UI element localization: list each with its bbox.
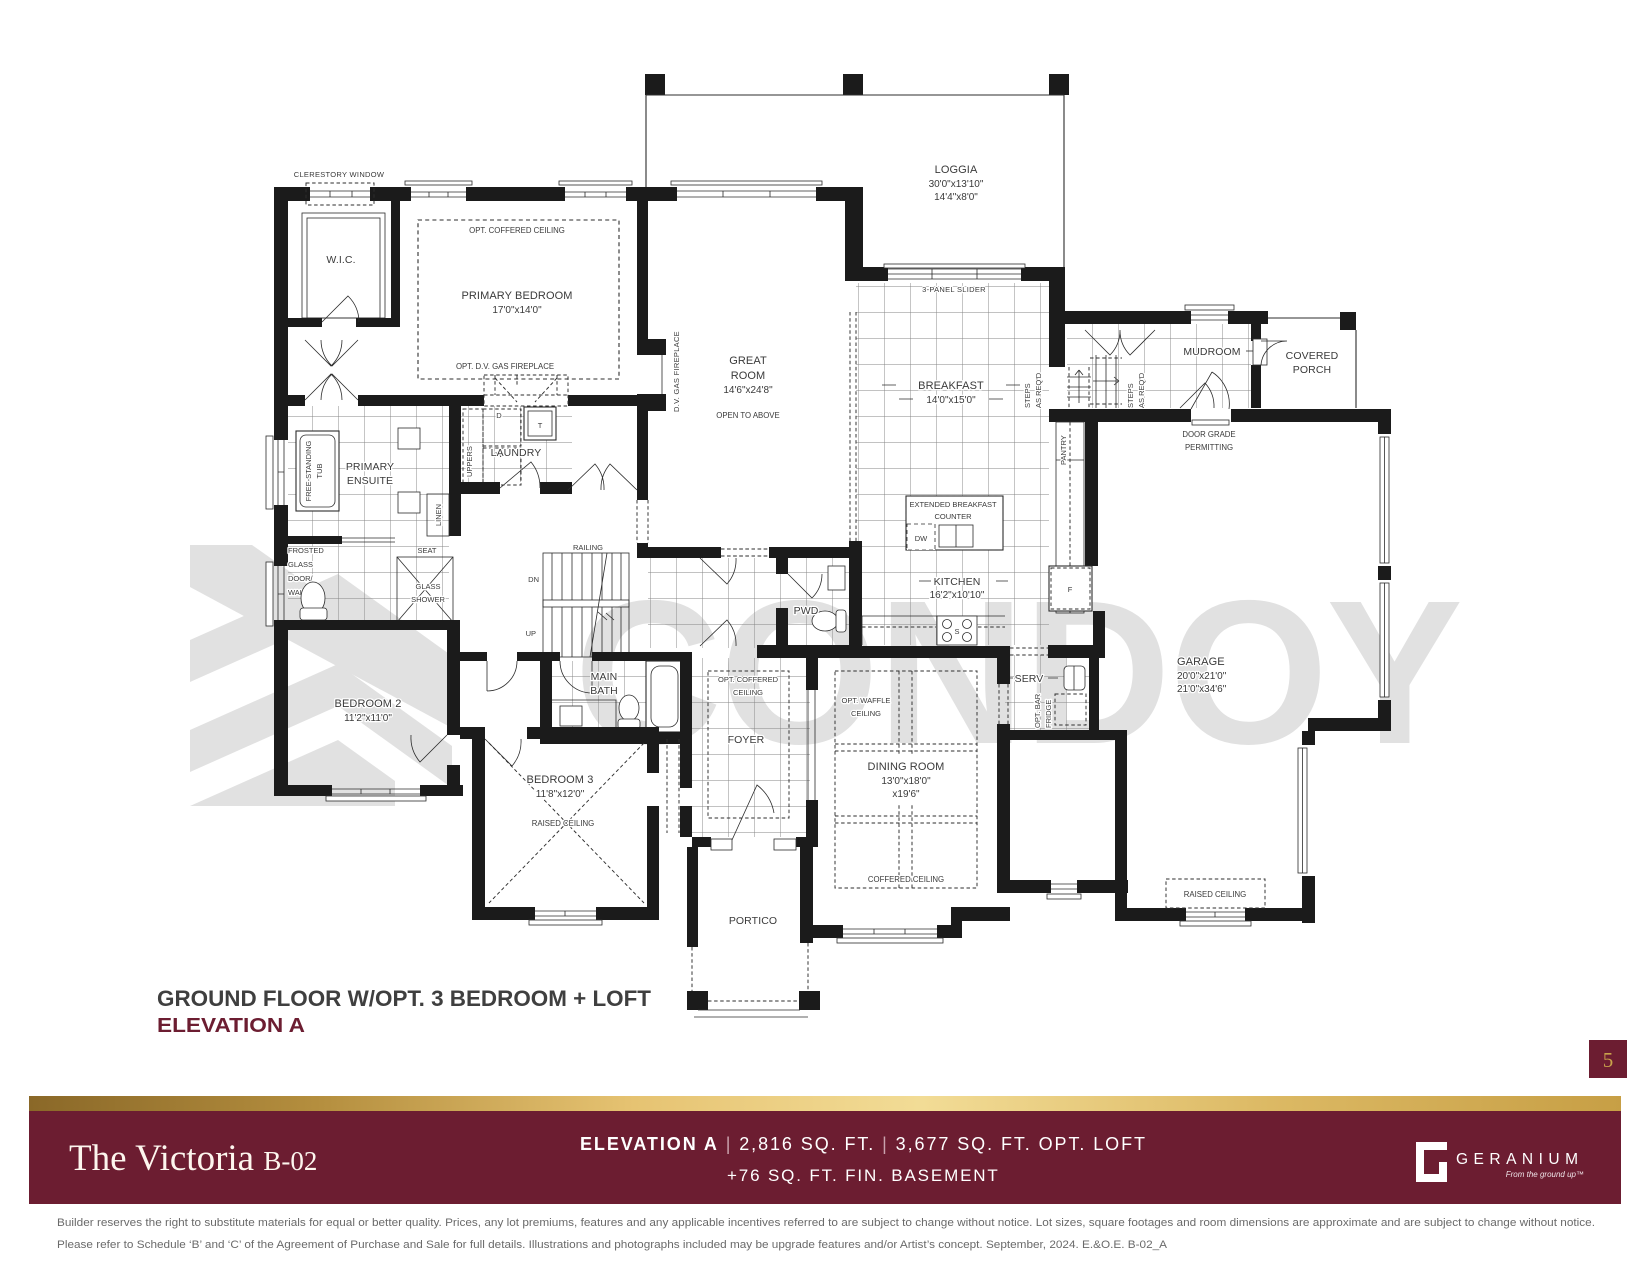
svg-text:OPT. D.V. GAS FIREPLACE: OPT. D.V. GAS FIREPLACE [456,362,554,371]
svg-text:GREAT: GREAT [729,355,767,367]
svg-text:BEDROOM 3: BEDROOM 3 [527,774,594,786]
svg-text:FREE-STANDING: FREE-STANDING [304,440,313,501]
svg-text:FROSTED: FROSTED [288,546,324,555]
svg-text:COVERED: COVERED [1286,350,1339,362]
svg-text:STEPS: STEPS [1023,383,1032,408]
svg-text:F: F [1068,585,1073,594]
svg-text:COUNTER: COUNTER [934,512,972,521]
svg-text:DOOR/: DOOR/ [288,574,314,583]
svg-text:14'6"x24'8": 14'6"x24'8" [723,385,773,396]
svg-text:CLERESTORY WINDOW: CLERESTORY WINDOW [294,170,385,179]
svg-text:RAILING: RAILING [573,543,603,552]
svg-text:From the ground up™: From the ground up™ [1506,1170,1584,1179]
svg-text:UP: UP [526,629,536,638]
svg-text:D.V. GAS FIREPLACE: D.V. GAS FIREPLACE [672,331,681,412]
svg-text:21'0"x34'6": 21'0"x34'6" [1177,684,1227,695]
svg-text:DN: DN [528,575,539,584]
svg-text:RAISED CEILING: RAISED CEILING [1184,890,1246,899]
svg-text:AS REQ'D: AS REQ'D [1137,372,1146,408]
svg-text:COFFERED CEILING: COFFERED CEILING [868,875,944,884]
svg-text:PORTICO: PORTICO [729,915,777,927]
svg-text:KITCHEN: KITCHEN [934,576,981,588]
svg-text:30'0"x13'10": 30'0"x13'10" [929,179,984,190]
svg-text:14'0"x15'0": 14'0"x15'0" [926,395,976,406]
svg-text:AS REQ'D: AS REQ'D [1034,372,1043,408]
svg-text:11'2"x11'0": 11'2"x11'0" [344,713,392,724]
svg-text:ELEVATION A | 2,816 SQ. FT.: ELEVATION A | 2,816 SQ. FT. | 3,677 SQ. … [580,1134,1146,1154]
svg-text:PORCH: PORCH [1293,364,1331,376]
svg-text:D: D [496,411,502,420]
svg-text:EXTENDED BREAKFAST: EXTENDED BREAKFAST [909,500,997,509]
svg-text:PWD: PWD [794,605,819,617]
svg-text:BREAKFAST: BREAKFAST [918,380,984,392]
svg-text:OPT. COFFERED CEILING: OPT. COFFERED CEILING [469,226,565,235]
svg-text:STEPS: STEPS [1126,383,1135,408]
svg-text:FRIDGE: FRIDGE [1044,700,1053,728]
svg-text:GARAGE: GARAGE [1177,656,1225,668]
svg-text:BEDROOM 2: BEDROOM 2 [335,698,402,710]
svg-text:+76 SQ. FT. FIN. BASEMENT: +76 SQ. FT. FIN. BASEMENT [727,1166,999,1185]
svg-text:14'4"x8'0": 14'4"x8'0" [934,192,978,203]
svg-text:OPT. COFFERED: OPT. COFFERED [718,675,779,684]
svg-text:OPT. BAR: OPT. BAR [1033,693,1042,728]
svg-text:ROOM: ROOM [731,370,766,382]
svg-text:16'2"x10'10": 16'2"x10'10" [930,590,985,601]
svg-text:Builder reserves the right to: Builder reserves the right to substitute… [57,1217,1595,1229]
svg-text:20'0"x21'0": 20'0"x21'0" [1177,671,1227,682]
svg-text:SERV: SERV [1015,673,1044,685]
svg-text:DINING ROOM: DINING ROOM [868,761,945,773]
svg-text:MUDROOM: MUDROOM [1183,346,1240,358]
svg-text:PRIMARY BEDROOM: PRIMARY BEDROOM [461,290,572,302]
svg-text:GROUND FLOOR W/OPT. 3 BEDROOM: GROUND FLOOR W/OPT. 3 BEDROOM + LOFT [157,986,652,1011]
svg-text:LINEN: LINEN [434,504,443,526]
svg-text:DOOR GRADE: DOOR GRADE [1182,430,1235,439]
svg-text:LOGGIA: LOGGIA [935,164,978,176]
svg-text:TUB: TUB [315,464,324,479]
svg-text:GLASS: GLASS [415,582,440,591]
svg-text:BATH: BATH [590,685,618,697]
svg-text:S: S [954,627,959,636]
svg-text:UPPERS: UPPERS [465,446,474,477]
svg-text:ELEVATION A: ELEVATION A [157,1015,305,1037]
svg-text:W.I.C.: W.I.C. [326,254,355,266]
svg-text:11'8"x12'0": 11'8"x12'0" [536,789,585,800]
svg-text:ENSUITE: ENSUITE [347,475,393,487]
svg-text:DW: DW [915,534,928,543]
svg-text:GERANIUM: GERANIUM [1456,1151,1584,1168]
svg-text:Please refer to Schedule ‘B’ a: Please refer to Schedule ‘B’ and ‘C’ of … [57,1239,1168,1251]
svg-text:CEILING: CEILING [851,709,881,718]
svg-text:5: 5 [1603,1048,1614,1072]
svg-text:PANTRY: PANTRY [1059,435,1068,465]
svg-text:PERMITTING: PERMITTING [1185,443,1233,452]
svg-text:SEAT: SEAT [417,546,436,555]
svg-text:LAUNDRY: LAUNDRY [491,447,542,459]
svg-text:OPEN TO ABOVE: OPEN TO ABOVE [716,411,779,420]
svg-text:RAISED CEILING: RAISED CEILING [532,819,594,828]
svg-text:FOYER: FOYER [728,734,765,746]
svg-text:MAIN: MAIN [591,671,618,683]
svg-text:x19'6": x19'6" [892,789,920,800]
svg-text:T: T [538,421,543,430]
svg-text:GLASS: GLASS [288,560,313,569]
svg-text:3-PANEL SLIDER: 3-PANEL SLIDER [922,285,986,294]
svg-text:CEILING: CEILING [733,688,763,697]
svg-text:OPT. WAFFLE: OPT. WAFFLE [842,696,891,705]
svg-text:13'0"x18'0": 13'0"x18'0" [881,776,931,787]
svg-text:SHOWER: SHOWER [411,595,445,604]
svg-text:PRIMARY: PRIMARY [346,461,394,473]
svg-text:17'0"x14'0": 17'0"x14'0" [492,305,542,316]
